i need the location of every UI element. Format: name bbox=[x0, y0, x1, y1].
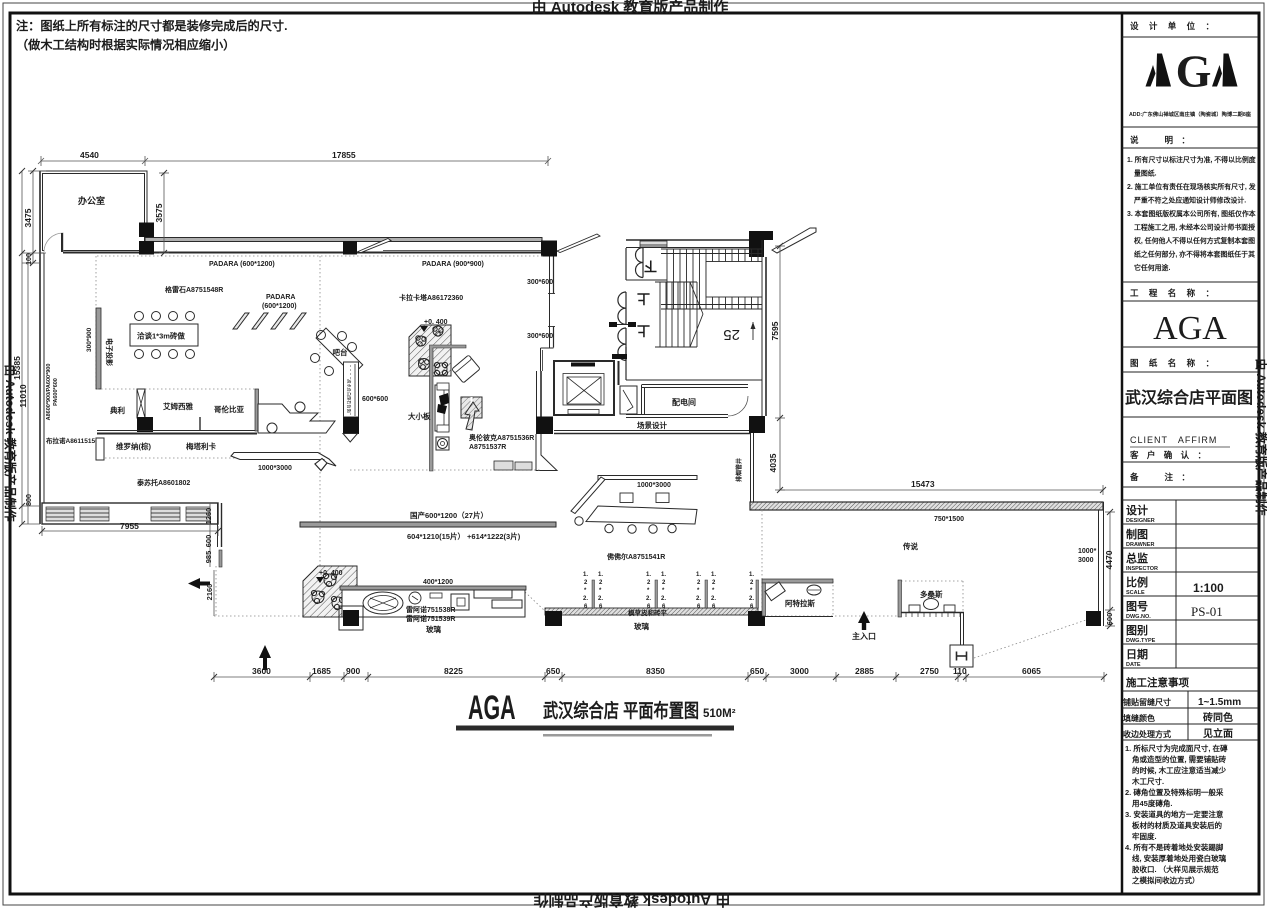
svg-text:日期: 日期 bbox=[1126, 647, 1148, 661]
svg-text:17855: 17855 bbox=[332, 150, 356, 160]
svg-text:AGA: AGA bbox=[468, 689, 516, 727]
svg-text:300*600: 300*600 bbox=[527, 333, 553, 340]
svg-text:武汉综合店 平面布置图: 武汉综合店 平面布置图 bbox=[543, 699, 699, 721]
svg-text:2160: 2160 bbox=[205, 584, 214, 601]
svg-text:由 Autodesk 教育版产品制作: 由 Autodesk 教育版产品制作 bbox=[1254, 358, 1267, 515]
svg-text:PA600*600: PA600*600 bbox=[53, 378, 59, 406]
svg-text:工程施工之用, 未经本公司设计师书面授: 工程施工之用, 未经本公司设计师书面授 bbox=[1134, 223, 1255, 232]
svg-text:4470: 4470 bbox=[1104, 550, 1114, 569]
svg-text:总监: 总监 bbox=[1126, 551, 1148, 565]
svg-text:备 注 ：: 备 注 ： bbox=[1129, 472, 1193, 482]
svg-text:300*600: 300*600 bbox=[527, 279, 553, 286]
svg-text:1685: 1685 bbox=[312, 666, 331, 676]
svg-text:武汉综合店平面图: 武汉综合店平面图 bbox=[1125, 388, 1253, 407]
svg-text:400*1200: 400*1200 bbox=[423, 579, 453, 586]
svg-text:注：图纸上所有标注的尺寸都是装修完成后的尺寸.: 注：图纸上所有标注的尺寸都是装修完成后的尺寸. bbox=[16, 18, 288, 33]
svg-text:1.: 1. bbox=[711, 572, 716, 578]
svg-text:1:100: 1:100 bbox=[1193, 581, 1224, 595]
svg-text:INSPECTOR: INSPECTOR bbox=[1126, 566, 1158, 572]
svg-text:2.: 2. bbox=[646, 596, 651, 602]
svg-text:图号: 图号 bbox=[1126, 600, 1148, 613]
svg-text:4. 所有不是砖着地处安装踢脚: 4. 所有不是砖着地处安装踢脚 bbox=[1125, 842, 1224, 852]
svg-text:A8751537R: A8751537R bbox=[469, 444, 506, 451]
svg-text:用45度磚角.: 用45度磚角. bbox=[1132, 798, 1172, 808]
svg-text:985: 985 bbox=[204, 551, 213, 564]
svg-text:3. 安装道具的地方一定要注意: 3. 安装道具的地方一定要注意 bbox=[1125, 809, 1224, 819]
svg-text:雷阿诺751538R: 雷阿诺751538R bbox=[406, 605, 455, 614]
svg-text:PADARA: PADARA bbox=[266, 294, 295, 301]
svg-text:电子投影: 电子投影 bbox=[105, 338, 114, 366]
svg-text:卡拉卡塔A86172360: 卡拉卡塔A86172360 bbox=[399, 293, 463, 302]
svg-text:玻璃: 玻璃 bbox=[634, 621, 649, 631]
svg-text:制图: 制图 bbox=[1126, 527, 1148, 541]
svg-text:吧台: 吧台 bbox=[333, 347, 348, 357]
svg-text:填缝颜色: 填缝颜色 bbox=[1123, 713, 1155, 723]
svg-text:办公室: 办公室 bbox=[78, 195, 105, 206]
svg-text:阿特拉斯: 阿特拉斯 bbox=[785, 598, 815, 608]
svg-text:梅塔利卡: 梅塔利卡 bbox=[186, 441, 216, 451]
svg-text:多桑斯: 多桑斯 bbox=[920, 589, 943, 599]
svg-text:（做木工结构时根据实际情况相应缩小）: （做木工结构时根据实际情况相应缩小） bbox=[16, 37, 235, 52]
svg-text:8225: 8225 bbox=[444, 666, 463, 676]
svg-text:线, 安装厚着地处用瓷白玻璃: 线, 安装厚着地处用瓷白玻璃 bbox=[1132, 853, 1227, 863]
svg-text:+0. 400: +0. 400 bbox=[424, 319, 448, 326]
svg-text:3. 本套图纸版权属本公司所有, 图纸仅作本: 3. 本套图纸版权属本公司所有, 图纸仅作本 bbox=[1127, 209, 1256, 218]
svg-text:高水台白理石台面: 高水台白理石台面 bbox=[346, 379, 353, 413]
svg-text:配电间: 配电间 bbox=[672, 397, 696, 407]
svg-text:2.: 2. bbox=[749, 596, 754, 602]
svg-text:量图纸.: 量图纸. bbox=[1134, 169, 1157, 178]
svg-text:维罗纳(棕): 维罗纳(棕) bbox=[116, 441, 151, 451]
svg-text:4540: 4540 bbox=[80, 150, 99, 160]
svg-text:650: 650 bbox=[750, 666, 764, 676]
svg-text:600*600: 600*600 bbox=[362, 396, 388, 403]
svg-text:权, 任何他人不得以任何方式复制本套图: 权, 任何他人不得以任何方式复制本套图 bbox=[1133, 236, 1255, 245]
svg-text:泰苏托A8601802: 泰苏托A8601802 bbox=[136, 478, 190, 487]
svg-text:1.: 1. bbox=[583, 572, 588, 578]
svg-text:7595: 7595 bbox=[770, 321, 780, 340]
svg-text:2.: 2. bbox=[661, 596, 666, 602]
svg-text:DESIGNER: DESIGNER bbox=[1126, 518, 1155, 524]
svg-text:2.: 2. bbox=[711, 596, 716, 602]
svg-text:设计: 设计 bbox=[1126, 503, 1148, 517]
svg-text:角或造型的位置, 需要铺贴砖: 角或造型的位置, 需要铺贴砖 bbox=[1132, 754, 1227, 764]
svg-text:排烟管井: 排烟管井 bbox=[735, 458, 743, 482]
svg-text:收边处理方式: 收边处理方式 bbox=[1123, 729, 1171, 739]
svg-text:604*1210(15片） +614*1222(3片): 604*1210(15片） +614*1222(3片) bbox=[407, 531, 521, 541]
svg-text:2885: 2885 bbox=[855, 666, 874, 676]
svg-text:奥伦彼克A8751536R: 奥伦彼克A8751536R bbox=[469, 433, 534, 442]
svg-text:纸之任何部分, 亦不得将本套图纸任于其: 纸之任何部分, 亦不得将本套图纸任于其 bbox=[1134, 250, 1255, 259]
svg-text:1.: 1. bbox=[661, 572, 666, 578]
svg-text:PADARA (600*1200): PADARA (600*1200) bbox=[209, 261, 275, 268]
svg-text:DWG.TYPE: DWG.TYPE bbox=[1126, 638, 1156, 644]
svg-text:2.: 2. bbox=[598, 596, 603, 602]
svg-text:A8600*900/PA600*900: A8600*900/PA600*900 bbox=[46, 364, 52, 421]
svg-text:3000: 3000 bbox=[1078, 557, 1094, 564]
svg-text:木工尺寸.: 木工尺寸. bbox=[1131, 776, 1164, 786]
svg-text:客 户 确 认 ：: 客 户 确 认 ： bbox=[1129, 450, 1209, 460]
svg-text:15385: 15385 bbox=[12, 356, 22, 380]
svg-text:15473: 15473 bbox=[911, 479, 935, 489]
svg-text:大小板: 大小板 bbox=[408, 411, 431, 421]
svg-text:施工注意事项: 施工注意事项 bbox=[1126, 676, 1189, 689]
svg-text:2750: 2750 bbox=[920, 666, 939, 676]
svg-text:DATE: DATE bbox=[1126, 662, 1141, 668]
svg-text:说 明 ：: 说 明 ： bbox=[1130, 135, 1193, 145]
svg-text:场景设计: 场景设计 bbox=[637, 420, 667, 430]
svg-text:艾姆西雅: 艾姆西雅 bbox=[163, 401, 193, 411]
svg-text:7955: 7955 bbox=[120, 521, 139, 531]
svg-text:板材的材质及道具安装后的: 板材的材质及道具安装后的 bbox=[1132, 820, 1222, 830]
svg-text:DRAWNER: DRAWNER bbox=[1126, 542, 1154, 548]
svg-text:2. 磚角位置及特殊标明一般采: 2. 磚角位置及特殊标明一般采 bbox=[1125, 787, 1224, 797]
svg-text:上: 上 bbox=[637, 323, 650, 338]
svg-text:由 Autodesk 教育版产品制作: 由 Autodesk 教育版产品制作 bbox=[534, 891, 731, 908]
svg-text:1000*3000: 1000*3000 bbox=[637, 482, 671, 489]
svg-text:2.: 2. bbox=[583, 596, 588, 602]
svg-text:3600: 3600 bbox=[252, 666, 271, 676]
svg-text:AGA: AGA bbox=[1153, 310, 1227, 347]
svg-text:比例: 比例 bbox=[1126, 575, 1148, 589]
svg-text:的时候, 木工应注意适当减少: 的时候, 木工应注意适当减少 bbox=[1132, 765, 1227, 775]
svg-text:100: 100 bbox=[26, 253, 33, 265]
svg-text:+0. 400: +0. 400 bbox=[319, 570, 343, 577]
svg-text:CLIENT AFFIRM: CLIENT AFFIRM bbox=[1130, 435, 1217, 445]
svg-text:国产600*1200（27片）: 国产600*1200（27片） bbox=[410, 510, 488, 520]
svg-text:8350: 8350 bbox=[646, 666, 665, 676]
svg-text:4035: 4035 bbox=[768, 453, 778, 472]
svg-text:由 Autodesk 教育版产品制作: 由 Autodesk 教育版产品制作 bbox=[532, 0, 729, 16]
svg-text:G: G bbox=[1176, 46, 1212, 97]
svg-text:PS-01: PS-01 bbox=[1191, 604, 1223, 619]
svg-text:750*1500: 750*1500 bbox=[934, 516, 964, 523]
svg-text:见立面: 见立面 bbox=[1203, 727, 1233, 740]
svg-text:胶收口. （大样见展示规范: 胶收口. （大样见展示规范 bbox=[1132, 864, 1219, 874]
svg-text:之模拟间收边方式）: 之模拟间收边方式） bbox=[1132, 875, 1200, 885]
svg-text:砖同色: 砖同色 bbox=[1203, 711, 1233, 724]
svg-text:主入口: 主入口 bbox=[852, 631, 876, 641]
svg-text:300*900: 300*900 bbox=[86, 327, 93, 352]
svg-text:图 纸 名 称 ：: 图 纸 名 称 ： bbox=[1130, 358, 1218, 368]
svg-text:格雷石A8751548R: 格雷石A8751548R bbox=[165, 285, 223, 294]
svg-text:DWG.NO.: DWG.NO. bbox=[1126, 614, 1151, 620]
svg-text:严重不符之处应通知设计师修改设计.: 严重不符之处应通知设计师修改设计. bbox=[1133, 196, 1246, 205]
svg-text:玻璃: 玻璃 bbox=[426, 624, 441, 634]
svg-text:3000: 3000 bbox=[790, 666, 809, 676]
svg-text:1000*3000: 1000*3000 bbox=[258, 465, 292, 472]
svg-text:洽谈1*3m砖做: 洽谈1*3m砖做 bbox=[137, 331, 185, 341]
svg-text:1.: 1. bbox=[646, 572, 651, 578]
svg-text:(600*1200): (600*1200) bbox=[262, 303, 297, 310]
svg-text:11010: 11010 bbox=[18, 384, 28, 407]
svg-text:PADARA (900*900): PADARA (900*900) bbox=[422, 261, 484, 268]
svg-text:下: 下 bbox=[644, 259, 657, 274]
svg-text:900: 900 bbox=[346, 666, 360, 676]
svg-text:25: 25 bbox=[723, 326, 740, 343]
svg-text:1. 所标尺寸为完成面尺寸, 在磚: 1. 所标尺寸为完成面尺寸, 在磚 bbox=[1125, 743, 1228, 753]
svg-text:1.: 1. bbox=[696, 572, 701, 578]
svg-text:它任何用途.: 它任何用途. bbox=[1134, 263, 1170, 272]
svg-text:1~1.5mm: 1~1.5mm bbox=[1198, 697, 1241, 708]
svg-text:哥伦比亚: 哥伦比亚 bbox=[214, 404, 244, 414]
svg-text:铺贴留缝尺寸: 铺贴留缝尺寸 bbox=[1123, 697, 1171, 707]
svg-text:设 计 单 位 ：: 设 计 单 位 ： bbox=[1130, 21, 1218, 31]
svg-text:6065: 6065 bbox=[1022, 666, 1041, 676]
svg-text:SCALE: SCALE bbox=[1126, 590, 1145, 596]
svg-text:传说: 传说 bbox=[902, 541, 918, 551]
svg-text:工 程 名 称 ：: 工 程 名 称 ： bbox=[1130, 288, 1218, 298]
svg-text:1260: 1260 bbox=[204, 508, 213, 525]
svg-text:ADD:广东佛山禅城区南庄镇（陶瓷城）陶博二期8座: ADD:广东佛山禅城区南庄镇（陶瓷城）陶博二期8座 bbox=[1129, 110, 1252, 118]
svg-text:牢固度.: 牢固度. bbox=[1132, 831, 1157, 841]
svg-text:2. 施工单位有责任在现场核实所有尺寸, 发: 2. 施工单位有责任在现场核实所有尺寸, 发 bbox=[1127, 182, 1256, 191]
svg-text:1. 所有尺寸以标注尺寸为准, 不得以比例度: 1. 所有尺寸以标注尺寸为准, 不得以比例度 bbox=[1127, 155, 1256, 164]
svg-text:由 Autodesk 教育版产品制作: 由 Autodesk 教育版产品制作 bbox=[3, 364, 18, 521]
svg-text:1.: 1. bbox=[598, 572, 603, 578]
svg-text:佛佛尔A8751541R: 佛佛尔A8751541R bbox=[606, 552, 665, 561]
svg-text:510M²: 510M² bbox=[703, 708, 736, 720]
svg-text:雷阿诺751539R: 雷阿诺751539R bbox=[406, 614, 455, 623]
svg-text:布拉诺A86115150: 布拉诺A86115150 bbox=[46, 436, 99, 445]
svg-text:2.: 2. bbox=[696, 596, 701, 602]
svg-text:典利: 典利 bbox=[110, 405, 125, 415]
svg-text:1000*: 1000* bbox=[1078, 548, 1097, 555]
svg-text:上: 上 bbox=[637, 291, 650, 306]
svg-text:600: 600 bbox=[204, 535, 213, 548]
svg-text:1.: 1. bbox=[749, 572, 754, 578]
svg-text:3475: 3475 bbox=[23, 208, 33, 227]
svg-text:图别: 图别 bbox=[1126, 623, 1148, 637]
svg-text:800: 800 bbox=[26, 494, 33, 506]
svg-text:3575: 3575 bbox=[154, 203, 164, 222]
